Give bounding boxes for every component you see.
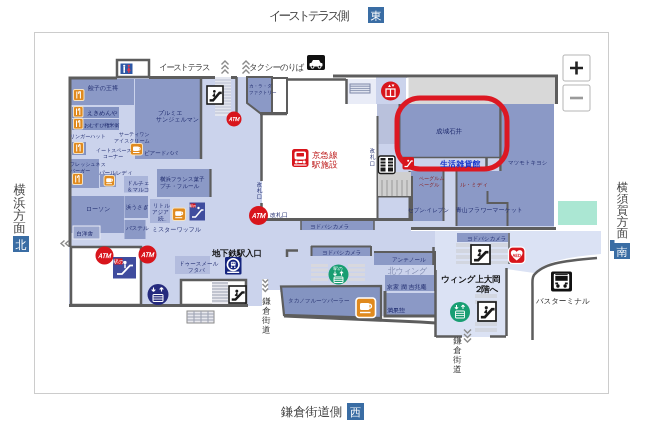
svg-text:満果惣: 満果惣: [387, 307, 405, 315]
svg-text:ATM: ATM: [251, 212, 266, 221]
svg-text:AED: AED: [512, 253, 521, 259]
svg-text:ベーグル: ベーグル: [419, 182, 439, 189]
svg-text:パステル: パステル: [125, 225, 149, 232]
svg-text:ヨドバシカメラ: ヨドバシカメラ: [310, 224, 349, 231]
svg-text:改札口: 改札口: [270, 211, 288, 219]
svg-text:タクシーのりば: タクシーのりば: [249, 62, 305, 73]
svg-text:北ウィング: 北ウィング: [387, 267, 428, 277]
svg-text:続..: 続..: [157, 216, 167, 223]
svg-text:イーストテラス: イーストテラス: [159, 62, 210, 73]
svg-text:南: 南: [617, 246, 628, 260]
svg-text:＆マルコ: ＆マルコ: [127, 187, 149, 194]
svg-text:2階へ: 2階へ: [476, 284, 499, 295]
svg-text:成城石井: 成城石井: [436, 128, 463, 136]
svg-text:パールレディ: パールレディ: [98, 170, 133, 177]
svg-text:駅の: 駅の: [189, 204, 196, 208]
svg-text:イーストテラス側: イーストテラス側: [269, 8, 349, 24]
svg-text:東: 東: [371, 10, 382, 24]
svg-text:おむすび権米衛: おむすび権米衛: [84, 122, 120, 129]
svg-text:バスターミナル: バスターミナル: [535, 298, 590, 307]
svg-text:バーガー: バーガー: [69, 169, 90, 175]
svg-text:面: 面: [13, 220, 26, 236]
svg-text:リンガーハット: リンガーハット: [70, 134, 106, 140]
svg-text:駅の: 駅の: [332, 266, 343, 272]
svg-text:地下鉄駅入口: 地下鉄駅入口: [211, 248, 262, 259]
svg-text:駅施設: 駅施設: [311, 160, 338, 171]
svg-text:セブン-イレブン: セブン-イレブン: [407, 207, 449, 214]
svg-text:青山フラワーマーケット: 青山フラワーマーケット: [456, 206, 523, 214]
svg-text:えきめんや: えきめんや: [87, 109, 118, 117]
svg-text:ATM: ATM: [97, 252, 112, 260]
svg-text:京家 潤 吉兆庵: 京家 潤 吉兆庵: [387, 283, 426, 291]
svg-text:ピアードパパ: ピアードパパ: [144, 150, 178, 157]
svg-text:ル・ミディ: ル・ミディ: [460, 182, 488, 189]
svg-text:アイスクリーム: アイスクリーム: [114, 139, 150, 145]
svg-text:サーティワン: サーティワン: [119, 132, 150, 138]
svg-text:北: 北: [15, 239, 27, 253]
svg-text:道: 道: [452, 364, 462, 375]
svg-text:ATM: ATM: [140, 251, 155, 259]
svg-text:フレッシュネス: フレッシュネス: [70, 162, 106, 168]
svg-text:ヨドバシカメラ: ヨドバシカメラ: [467, 236, 506, 243]
svg-text:カ・ラ・ダ: カ・ラ・ダ: [249, 84, 272, 90]
svg-text:タカノフルーツパーラー: タカノフルーツパーラー: [288, 298, 350, 305]
svg-text:プチ・フルール: プチ・フルール: [160, 183, 200, 190]
svg-text:白洋舎: 白洋舎: [77, 231, 94, 238]
svg-text:ミスターワッフル: ミスターワッフル: [152, 226, 201, 234]
svg-text:口: 口: [370, 161, 376, 168]
svg-text:コーナー: コーナー: [103, 154, 123, 160]
svg-text:口: 口: [257, 194, 263, 201]
svg-text:面: 面: [617, 227, 629, 241]
svg-text:西: 西: [350, 406, 361, 420]
svg-text:ローソン: ローソン: [86, 205, 110, 213]
svg-text:浜うさぎ: 浜うさぎ: [125, 204, 149, 211]
svg-text:ヨドバシカメラ: ヨドバシカメラ: [322, 250, 361, 257]
svg-text:ファクトリー: ファクトリー: [249, 90, 277, 96]
svg-text:ATM: ATM: [228, 116, 241, 123]
svg-text:フタバ: フタバ: [188, 267, 205, 274]
svg-text:サンジェルマン: サンジェルマン: [156, 116, 199, 124]
svg-text:鎌倉街道側: 鎌倉街道側: [281, 404, 342, 420]
svg-text:生活雑貨館: 生活雑貨館: [440, 160, 481, 170]
svg-text:道: 道: [261, 325, 271, 336]
svg-text:横浜フランス菓子: 横浜フランス菓子: [160, 176, 205, 183]
svg-text:餃子の王将: 餃子の王将: [87, 84, 118, 92]
svg-text:駅の: 駅の: [112, 259, 123, 266]
svg-text:アンテノール: アンテノール: [392, 257, 426, 264]
svg-text:マツモトキヨシ: マツモトキヨシ: [508, 160, 548, 167]
svg-text:ベーグルム: ベーグルム: [419, 175, 444, 182]
